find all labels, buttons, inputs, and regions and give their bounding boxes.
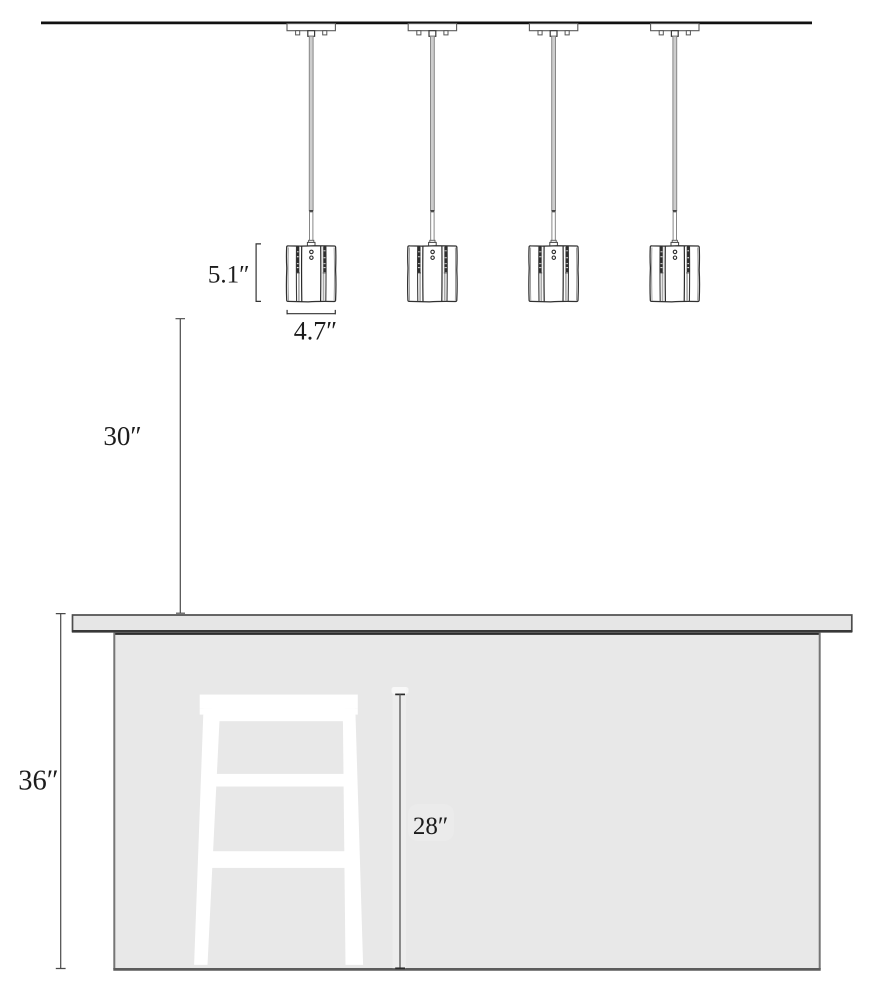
svg-text:28″: 28″ bbox=[413, 813, 448, 840]
svg-text:4.7″: 4.7″ bbox=[294, 317, 337, 346]
svg-text:5.1″: 5.1″ bbox=[208, 262, 250, 289]
svg-text:36″: 36″ bbox=[18, 765, 58, 796]
svg-text:30″: 30″ bbox=[103, 421, 141, 451]
